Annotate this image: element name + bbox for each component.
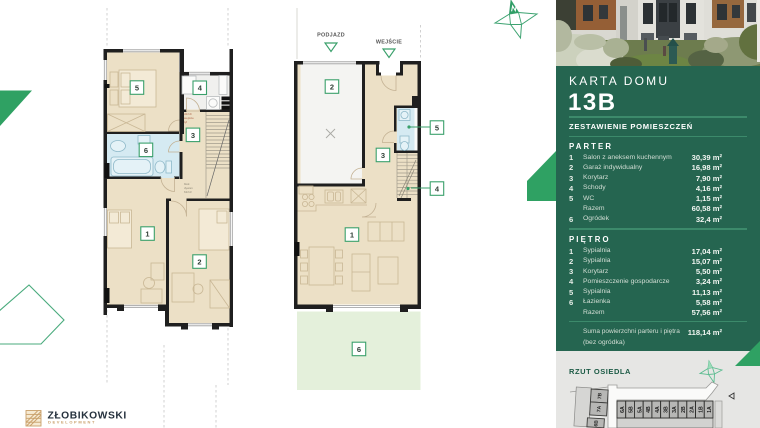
svg-text:1B: 1B	[698, 406, 704, 413]
svg-text:6: 6	[144, 146, 148, 155]
svg-text:61/13: 61/13	[184, 190, 192, 194]
svg-text:5B: 5B	[629, 406, 635, 413]
svg-text:3: 3	[191, 131, 195, 140]
svg-text:5: 5	[435, 124, 439, 133]
svg-text:6: 6	[357, 345, 361, 354]
svg-text:PODJAZD: PODJAZD	[317, 33, 345, 39]
svg-text:1: 1	[350, 231, 354, 240]
svg-text:6B: 6B	[593, 420, 599, 427]
svg-text:WEJŚCIE: WEJŚCIE	[376, 39, 402, 46]
svg-text:1A: 1A	[707, 406, 713, 413]
svg-text:2A: 2A	[690, 406, 696, 413]
svg-text:5: 5	[135, 84, 139, 93]
svg-text:6A: 6A	[620, 406, 626, 413]
svg-text:7B: 7B	[597, 392, 603, 399]
svg-text:2: 2	[330, 83, 334, 92]
svg-text:1: 1	[145, 230, 149, 239]
svg-text:tył: tył	[184, 120, 187, 124]
svg-text:3: 3	[381, 151, 385, 160]
svg-text:3B: 3B	[664, 406, 670, 413]
svg-text:5A: 5A	[637, 406, 643, 413]
svg-text:2B: 2B	[681, 406, 687, 413]
svg-text:7A: 7A	[596, 405, 602, 412]
svg-text:4A: 4A	[655, 406, 661, 413]
svg-text:2: 2	[197, 258, 201, 267]
svg-text:DEVELOPMENT: DEVELOPMENT	[48, 420, 96, 425]
svg-text:3A: 3A	[672, 406, 678, 413]
svg-text:4B: 4B	[646, 406, 652, 413]
